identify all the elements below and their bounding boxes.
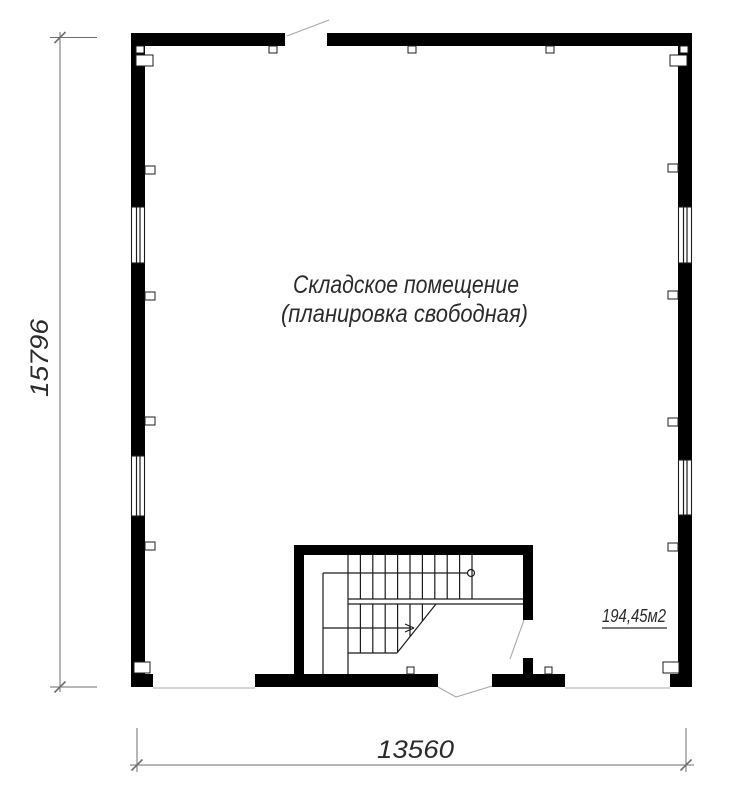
width-dimension-label: 13560 xyxy=(377,736,454,764)
column-mark xyxy=(269,46,277,53)
bottom-wall-center-right xyxy=(492,674,565,687)
corner-column-mark-tr xyxy=(670,55,687,66)
staircase xyxy=(294,545,533,674)
corner-column-mark-tl xyxy=(136,55,153,66)
window-symbol-right-upper xyxy=(679,207,692,263)
stair-walking-line xyxy=(323,570,475,633)
right-wall-middle xyxy=(678,263,692,460)
column-mark xyxy=(668,291,678,299)
left-wall-middle xyxy=(131,263,145,456)
floor-plan-page: 15796 13560 Складское помещение (планиро… xyxy=(0,0,743,800)
bottom-wall-right-stub xyxy=(670,674,692,687)
room-label: Складское помещение (планировка свободна… xyxy=(281,271,528,328)
vertical-dimension: 15796 xyxy=(26,32,97,693)
column-mark xyxy=(668,164,678,172)
column-mark xyxy=(680,46,688,53)
window-symbol-right-lower xyxy=(679,460,692,515)
column-mark xyxy=(136,46,144,53)
corner-column-mark-bl xyxy=(134,662,150,673)
stair-wall-top xyxy=(294,545,533,555)
window-symbol-left-upper xyxy=(132,207,145,263)
height-dimension-label: 15796 xyxy=(26,319,54,397)
area-label: 194,45м2 xyxy=(602,606,667,628)
column-mark xyxy=(408,46,416,53)
column-mark xyxy=(145,166,155,174)
column-mark xyxy=(145,417,155,425)
column-mark xyxy=(545,667,552,674)
walking-line-start-circle xyxy=(468,570,475,577)
room-label-line2: (планировка свободная) xyxy=(281,300,528,328)
door-swings xyxy=(153,20,670,697)
stair-wall-left xyxy=(294,545,304,674)
floor-plan-drawing: 15796 13560 Складское помещение (планиро… xyxy=(0,0,743,800)
entrance-door-mark xyxy=(438,686,492,697)
bottom-wall-left-stub xyxy=(131,674,153,687)
bottom-wall-center-left xyxy=(255,674,438,687)
column-mark xyxy=(145,542,155,550)
stair-upper-treads xyxy=(360,555,472,599)
horizontal-dimension: 13560 xyxy=(130,728,694,772)
window-symbol-left-lower xyxy=(132,456,145,516)
column-marks xyxy=(134,46,688,674)
stair-door-leaf xyxy=(510,620,524,659)
stair-wall-right-stub xyxy=(523,658,533,674)
column-mark xyxy=(407,667,414,674)
exterior-walls xyxy=(131,33,692,687)
column-mark xyxy=(546,46,554,53)
column-mark xyxy=(145,292,155,300)
right-wall-lower xyxy=(678,515,692,687)
top-wall-left-segment xyxy=(131,33,285,46)
room-label-line1: Складское помещение xyxy=(293,271,519,299)
left-wall-lower xyxy=(131,516,145,687)
top-wall-right-segment xyxy=(327,33,692,46)
stair-wall-right-upper xyxy=(523,545,533,620)
area-value: 194,45м2 xyxy=(602,606,666,626)
column-mark xyxy=(668,418,678,426)
window-symbols xyxy=(132,207,692,516)
top-door-leaf xyxy=(287,20,329,36)
column-mark xyxy=(668,543,678,551)
corner-column-mark-br xyxy=(663,662,679,673)
